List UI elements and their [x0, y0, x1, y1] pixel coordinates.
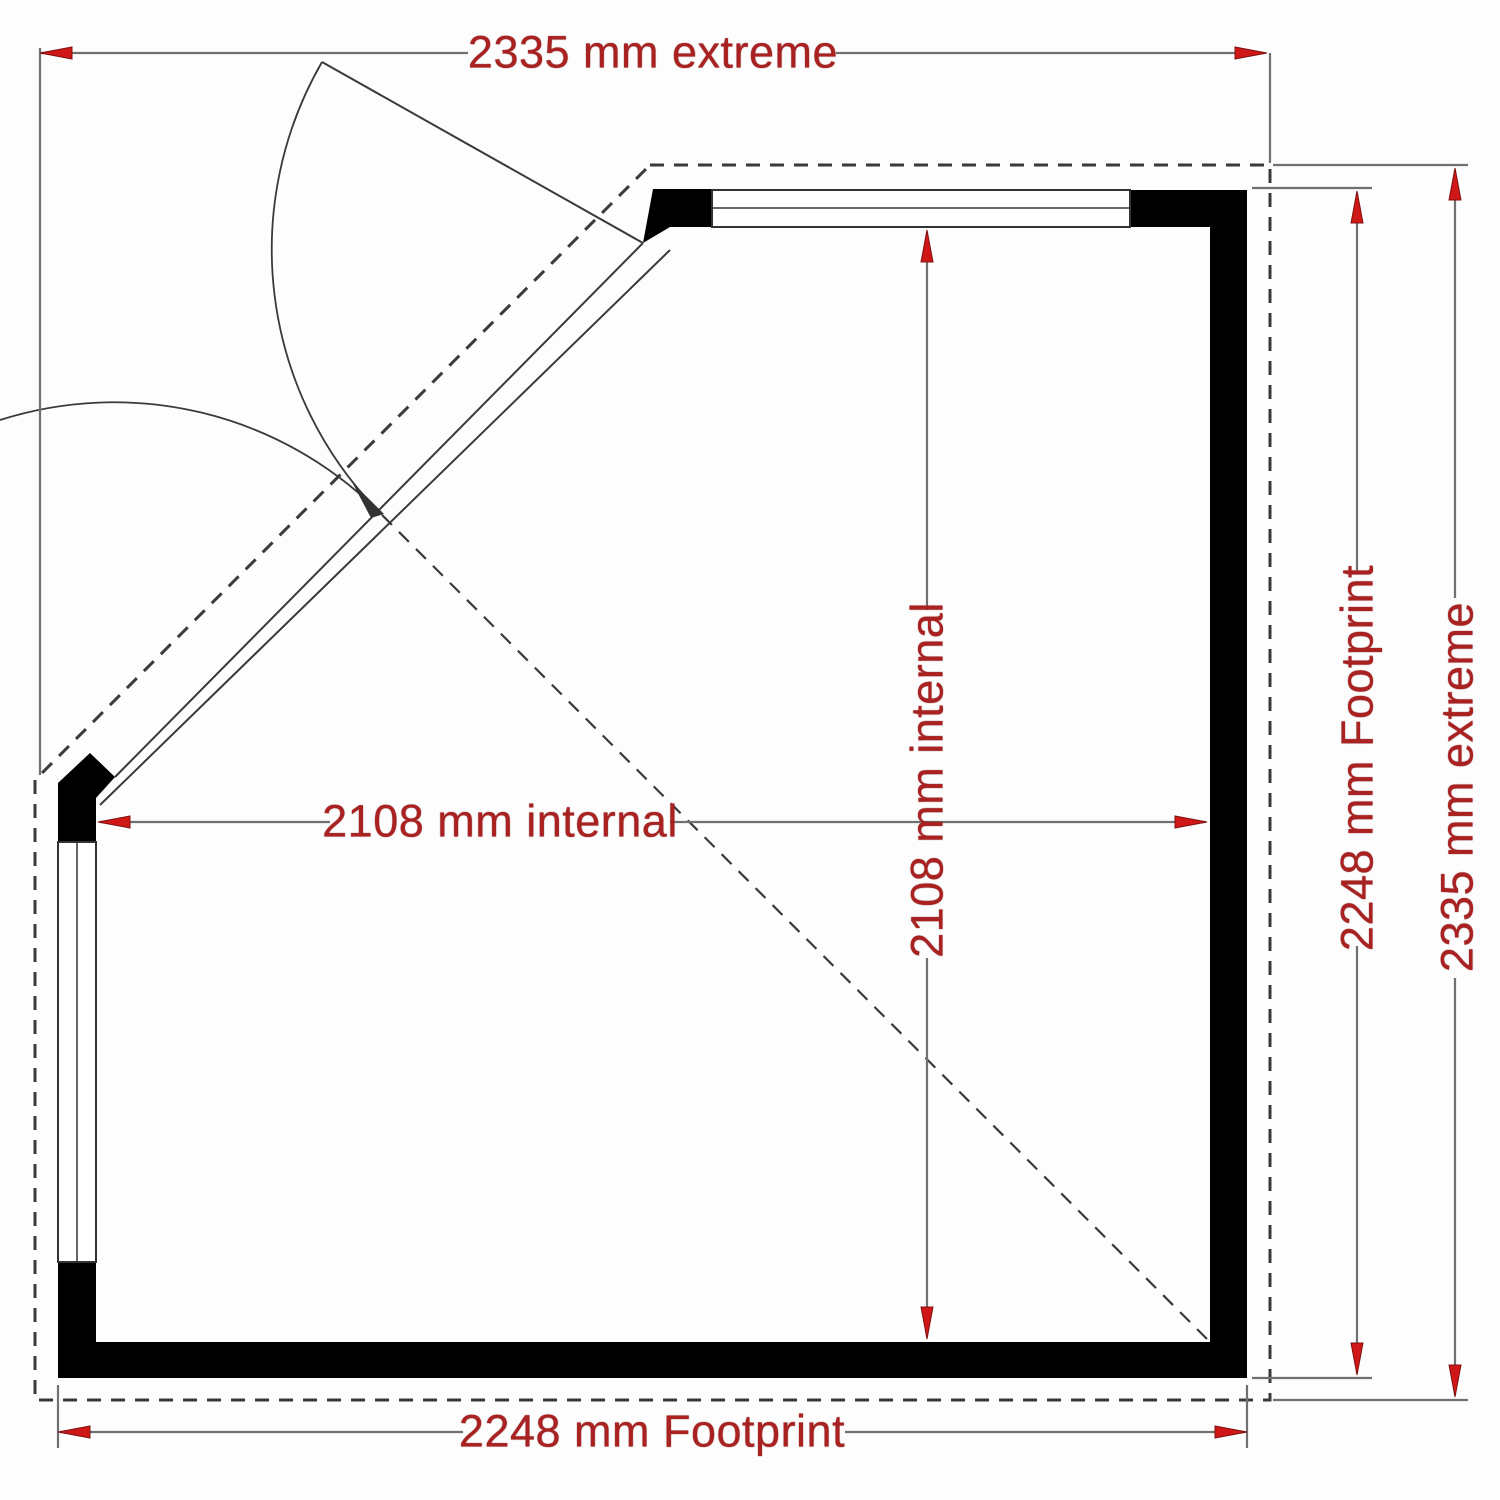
dim-label-bottom-footprint: 2248 mm Footprint	[459, 1409, 845, 1454]
overhang-outline-group	[35, 165, 1270, 1400]
arrow-internal-down	[921, 1307, 933, 1339]
arrow-extreme-up	[1449, 168, 1461, 200]
dim-label-right-footprint: 2248 mm Footprint	[1335, 565, 1380, 951]
dim-label-top-extreme: 2335 mm extreme	[468, 30, 838, 75]
door-group	[0, 62, 670, 805]
dim-label-internal-width: 2108 mm internal	[322, 799, 678, 844]
wall-corner-top	[643, 189, 712, 243]
doorway-inner-line	[100, 250, 670, 805]
wall-left-lower	[58, 1262, 96, 1342]
arrow-top-left	[40, 47, 72, 59]
arrow-internal-up	[921, 230, 933, 262]
dim-label-internal-depth: 2108 mm internal	[905, 602, 950, 958]
floor-plan-canvas: 2335 mm extreme 2248 mm Footprint 2108 m…	[0, 0, 1500, 1500]
door-swing-arc-right	[272, 62, 378, 511]
door-leaf-open	[322, 62, 643, 243]
dimension-lines-group	[40, 48, 1468, 1448]
arrow-internal-right	[1175, 816, 1207, 828]
arrow-top-right	[1235, 47, 1267, 59]
arrow-footprint-down	[1351, 1343, 1363, 1375]
arrow-bottom-left	[58, 1426, 90, 1438]
door-leaf-meeting-wedge	[352, 482, 384, 518]
dim-label-right-extreme: 2335 mm extreme	[1435, 602, 1480, 972]
arrow-extreme-down	[1449, 1365, 1461, 1397]
dimension-arrows-group	[40, 47, 1461, 1438]
overhang-outline	[35, 165, 1270, 1400]
arrow-footprint-up	[1351, 191, 1363, 223]
wall-bottom	[58, 1342, 1247, 1378]
wall-right	[1210, 190, 1247, 1378]
floor-plan-drawing	[0, 0, 1500, 1500]
room-diagonal-dashed	[382, 515, 1210, 1342]
arrow-internal-left	[98, 816, 130, 828]
arrow-bottom-right	[1215, 1426, 1247, 1438]
